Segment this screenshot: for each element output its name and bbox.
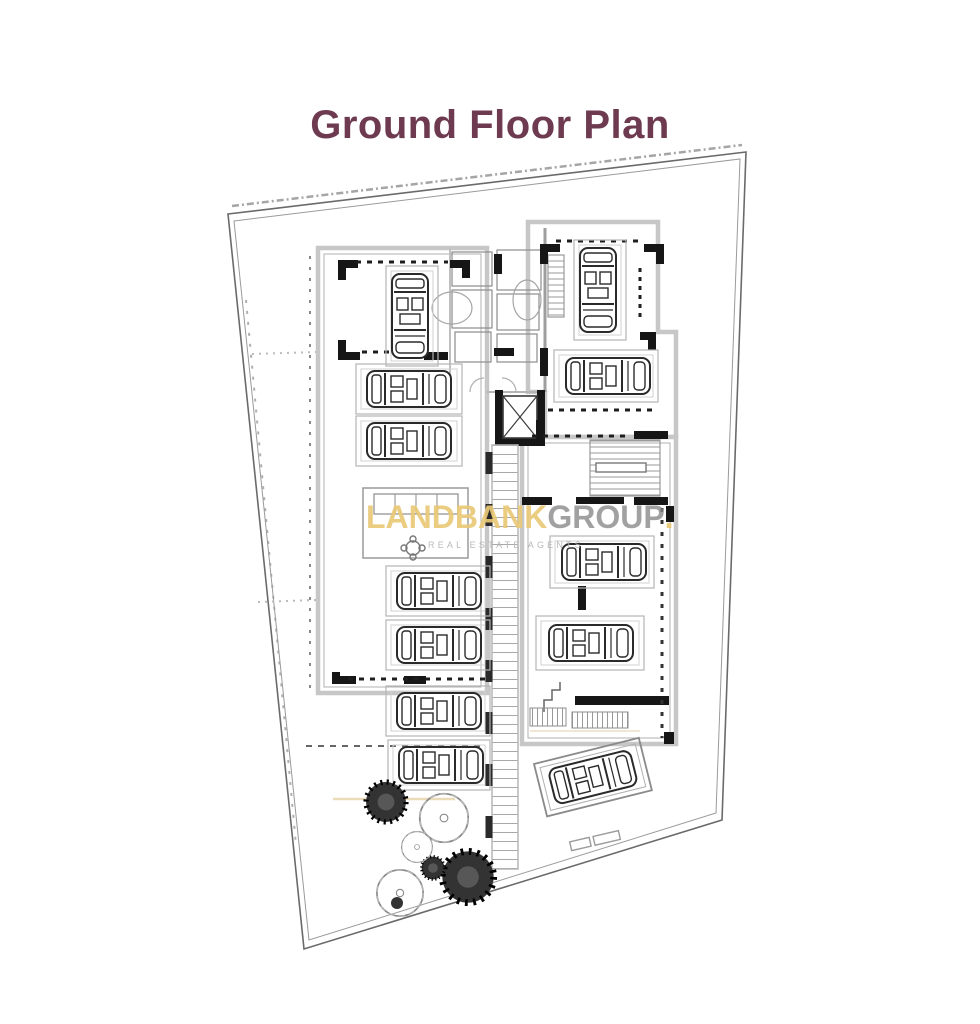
- car-icon: [397, 627, 481, 663]
- car-icon: [580, 248, 616, 332]
- ramp: [489, 445, 518, 869]
- parking-bay: [356, 364, 462, 414]
- car-icon: [397, 573, 481, 609]
- car-icon: [367, 371, 451, 407]
- parking-bay: [356, 416, 462, 466]
- door-swing-arc: [502, 378, 516, 392]
- car-icon: [367, 423, 451, 459]
- tree-icon: [377, 870, 423, 916]
- boundary-dimension-text-band: [232, 145, 742, 206]
- parking-bay: [388, 740, 490, 790]
- tree-icon: [442, 851, 493, 902]
- car-icon: [392, 274, 428, 358]
- stairs-icon: [548, 255, 564, 317]
- visitor-parking-label-marks: [570, 831, 621, 851]
- car-icon: [562, 544, 646, 580]
- floor-plan-page: Ground Floor Plan: [0, 0, 980, 1024]
- tree-icon: [366, 782, 406, 822]
- car-icon: [399, 747, 483, 783]
- visitor-parking-bay: [534, 738, 652, 817]
- parking-bay: [386, 686, 490, 736]
- car-icon: [397, 693, 481, 729]
- car-icon: [549, 625, 633, 661]
- parking-bay: [386, 620, 490, 670]
- landscaping: [366, 782, 494, 916]
- shrub-icon: [391, 897, 403, 909]
- tree-icon: [402, 832, 433, 863]
- parking-bay: [386, 566, 490, 616]
- car-icon: [566, 358, 650, 394]
- floor-plan-drawing: [0, 0, 980, 1024]
